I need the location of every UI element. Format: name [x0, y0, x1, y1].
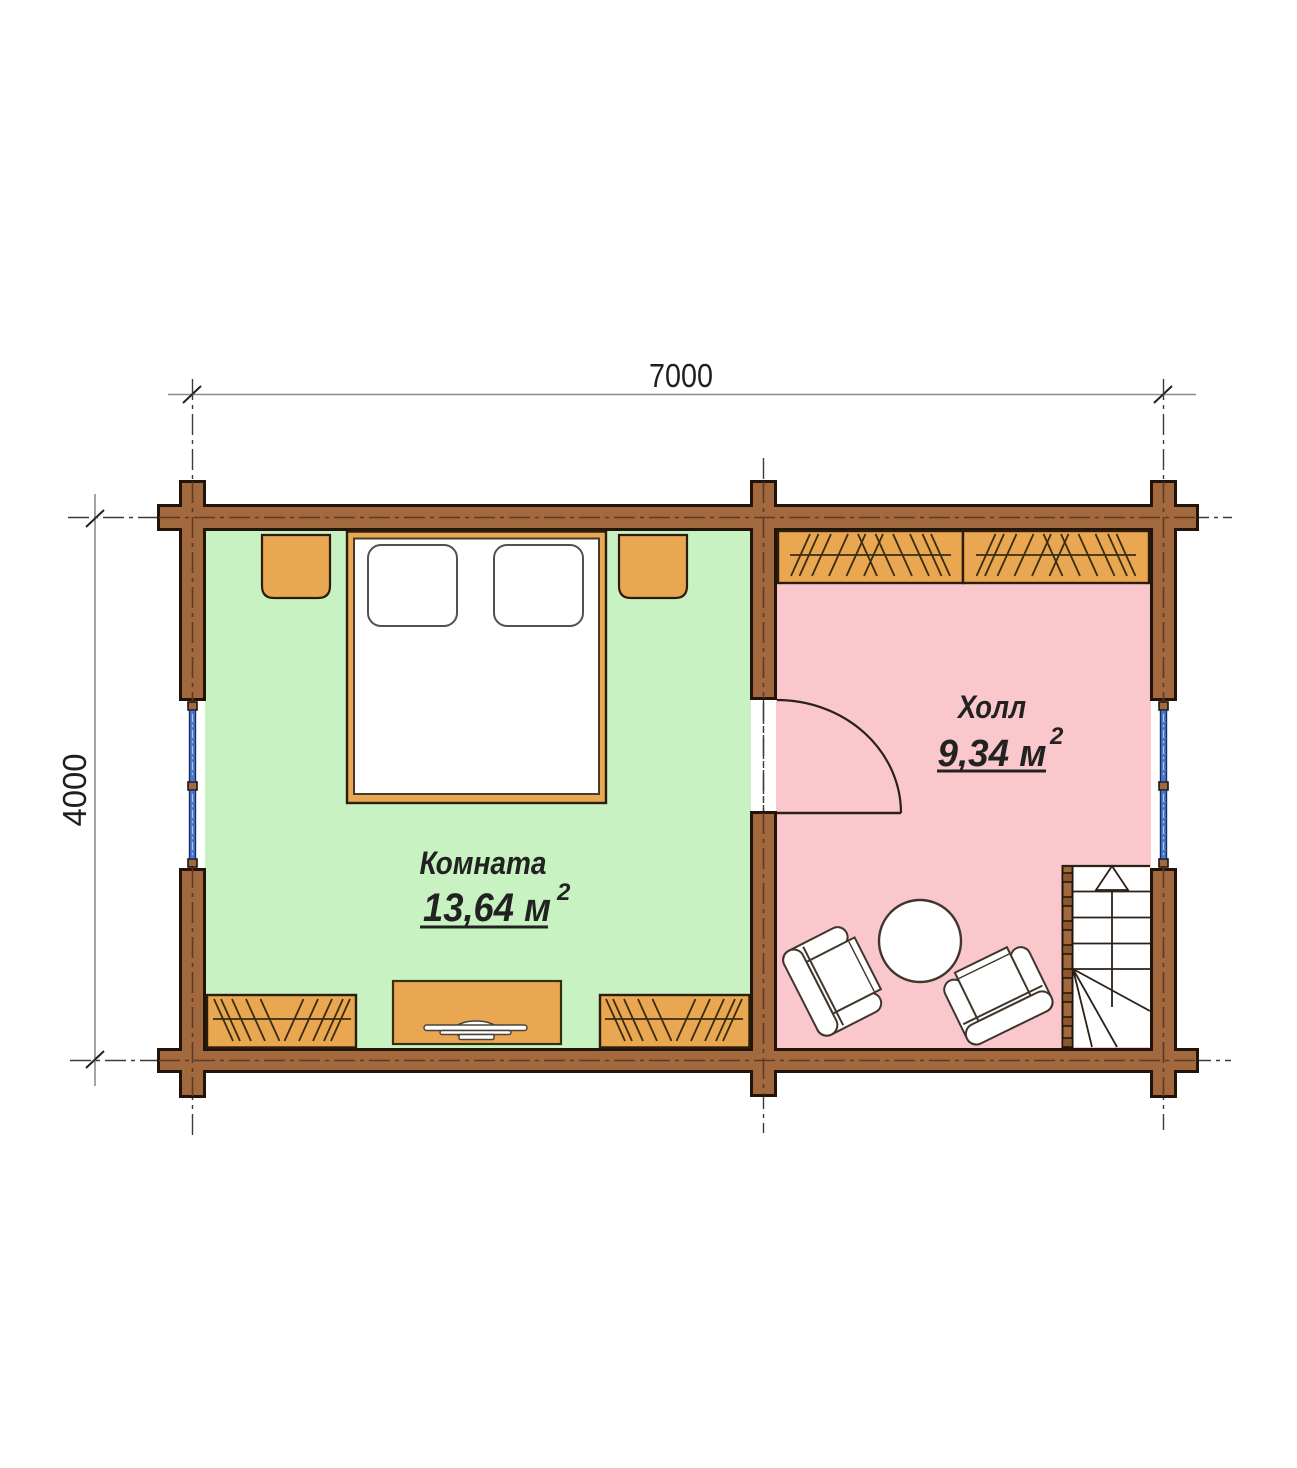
svg-text:13,64 м: 13,64 м: [423, 886, 551, 930]
svg-text:2: 2: [556, 879, 571, 906]
svg-text:2: 2: [1049, 723, 1064, 750]
svg-text:7000: 7000: [649, 357, 713, 394]
svg-text:Комната: Комната: [420, 845, 547, 881]
svg-text:Холл: Холл: [956, 689, 1026, 725]
svg-text:9,34 м: 9,34 м: [938, 733, 1047, 775]
svg-text:4000: 4000: [56, 754, 93, 827]
